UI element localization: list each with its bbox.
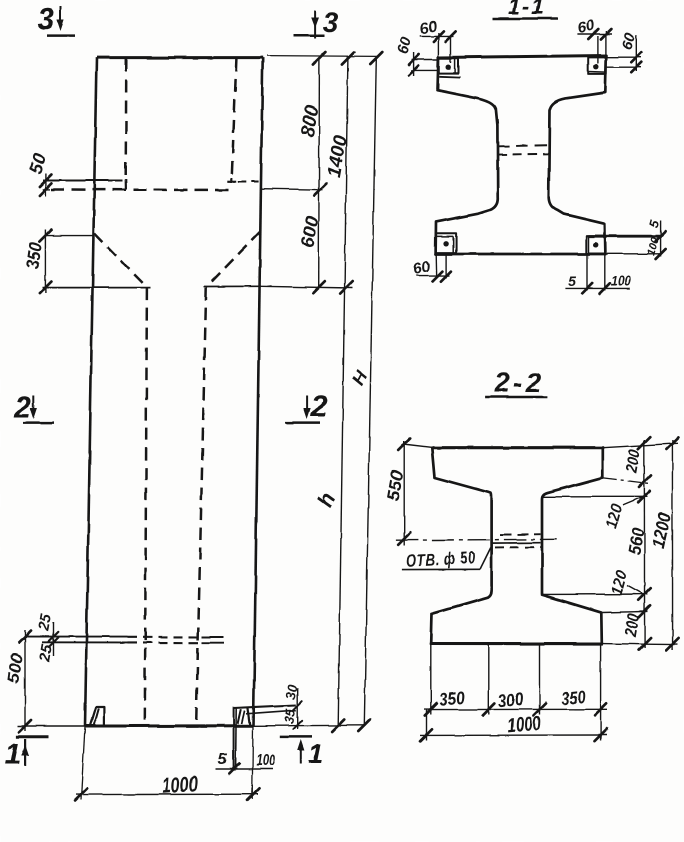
svg-text:ОТВ. ф 50: ОТВ. ф 50: [406, 548, 477, 571]
svg-text:1: 1: [5, 738, 22, 771]
svg-text:1: 1: [308, 739, 323, 769]
svg-text:25: 25: [36, 643, 56, 664]
svg-text:5: 5: [218, 752, 228, 769]
svg-text:350: 350: [22, 241, 46, 271]
svg-text:5: 5: [568, 273, 576, 289]
svg-text:25: 25: [36, 612, 56, 633]
svg-text:3: 3: [38, 3, 55, 36]
svg-text:100: 100: [256, 753, 275, 770]
svg-text:2: 2: [310, 390, 328, 423]
svg-text:1-1: 1-1: [508, 0, 546, 19]
svg-text:100: 100: [611, 273, 631, 289]
svg-text:2-2: 2-2: [494, 367, 544, 398]
svg-text:1000: 1000: [161, 771, 199, 798]
svg-text:350: 350: [561, 686, 587, 708]
svg-text:3: 3: [323, 7, 339, 38]
svg-text:300: 300: [497, 689, 524, 712]
svg-text:350: 350: [438, 687, 466, 710]
svg-text:2: 2: [13, 391, 31, 424]
svg-text:1000: 1000: [507, 713, 542, 738]
